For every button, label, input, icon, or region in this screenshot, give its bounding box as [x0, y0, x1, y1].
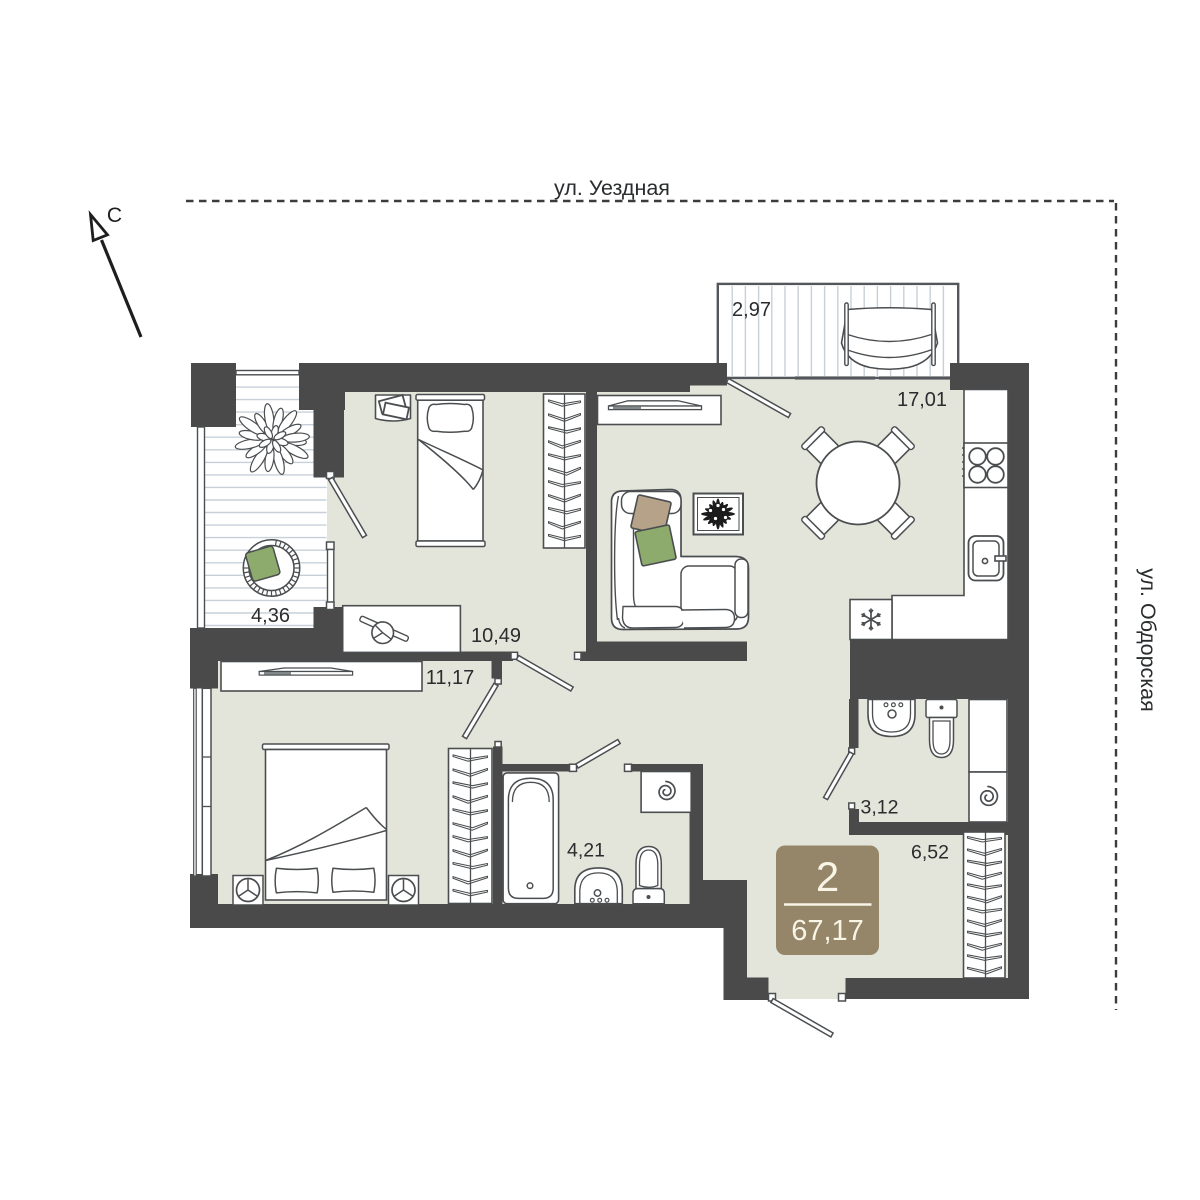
- svg-text:ул. Уездная: ул. Уездная: [554, 176, 670, 200]
- svg-text:С: С: [107, 204, 122, 227]
- svg-text:4,36: 4,36: [251, 605, 290, 627]
- svg-text:4,21: 4,21: [567, 840, 605, 862]
- svg-text:17,01: 17,01: [897, 389, 947, 411]
- svg-text:6,52: 6,52: [911, 842, 949, 864]
- svg-text:2,97: 2,97: [732, 299, 771, 321]
- svg-text:11,17: 11,17: [426, 667, 475, 689]
- svg-text:3,12: 3,12: [861, 797, 899, 819]
- svg-text:2: 2: [816, 853, 839, 900]
- svg-text:10,49: 10,49: [471, 625, 521, 647]
- svg-text:ул. Обдорская: ул. Обдорская: [1136, 568, 1160, 712]
- svg-text:67,17: 67,17: [791, 915, 864, 947]
